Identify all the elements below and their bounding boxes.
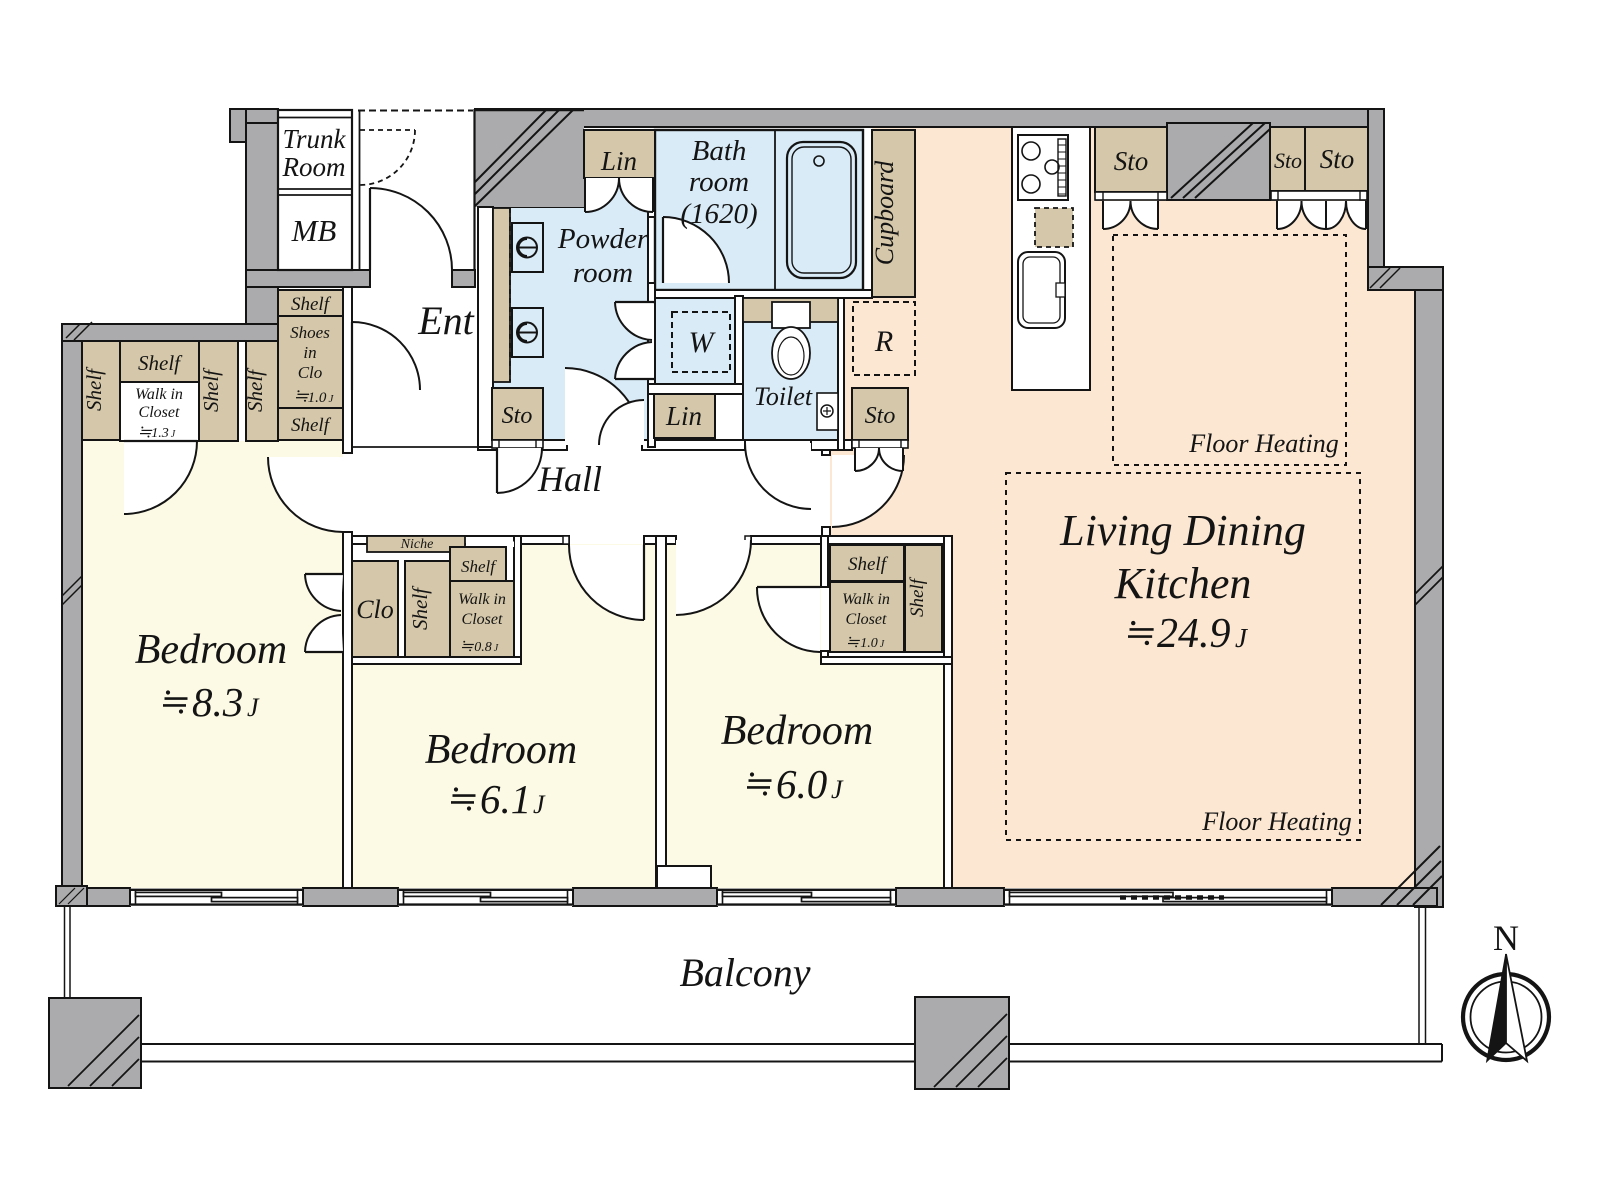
svg-text:Shoes: Shoes	[290, 323, 330, 342]
svg-text:J: J	[831, 775, 844, 804]
svg-text:Bath: Bath	[692, 135, 747, 167]
svg-text:MB: MB	[291, 213, 337, 248]
svg-text:J: J	[533, 790, 546, 819]
svg-text:Lin: Lin	[665, 401, 702, 431]
svg-text:J: J	[171, 429, 176, 440]
svg-text:Shelf: Shelf	[408, 585, 432, 630]
svg-text:6.1: 6.1	[480, 776, 531, 822]
svg-text:Clo: Clo	[356, 595, 394, 624]
svg-text:Sto: Sto	[1114, 146, 1149, 176]
svg-text:Bedroom: Bedroom	[425, 727, 577, 773]
svg-text:Niche: Niche	[400, 537, 434, 552]
svg-text:N: N	[1493, 918, 1519, 958]
svg-text:room: room	[689, 166, 749, 198]
svg-text:Shelf: Shelf	[848, 554, 889, 575]
svg-text:Sto: Sto	[1274, 148, 1302, 173]
svg-text:Walk in: Walk in	[135, 386, 183, 403]
svg-text:Bedroom: Bedroom	[135, 627, 287, 673]
svg-text:6.0: 6.0	[776, 761, 827, 807]
svg-text:J: J	[880, 639, 885, 650]
svg-text:Shelf: Shelf	[291, 294, 332, 315]
svg-text:Shelf: Shelf	[907, 576, 928, 617]
svg-text:Shelf: Shelf	[199, 367, 223, 412]
svg-text:1.0: 1.0	[308, 390, 327, 406]
svg-text:Toilet: Toilet	[754, 382, 813, 411]
svg-text:Balcony: Balcony	[679, 950, 810, 995]
svg-text:in: in	[303, 343, 316, 362]
svg-text:Closet: Closet	[139, 404, 180, 421]
svg-text:Walk in: Walk in	[458, 591, 506, 608]
svg-text:0.8: 0.8	[474, 640, 492, 655]
svg-text:Shelf: Shelf	[138, 351, 183, 375]
svg-text:Closet: Closet	[846, 611, 887, 628]
svg-text:Walk in: Walk in	[842, 591, 890, 608]
svg-text:Powder: Powder	[557, 223, 649, 255]
svg-text:Lin: Lin	[600, 146, 637, 176]
svg-text:J: J	[494, 643, 499, 654]
svg-text:R: R	[874, 325, 893, 358]
svg-text:1.0: 1.0	[860, 636, 878, 651]
svg-text:Room: Room	[282, 152, 346, 182]
svg-text:Sto: Sto	[1320, 144, 1355, 174]
svg-text:Sto: Sto	[865, 403, 896, 429]
svg-text:Ent: Ent	[417, 298, 474, 343]
svg-text:Shelf: Shelf	[291, 415, 332, 436]
svg-text:1.3: 1.3	[151, 426, 169, 441]
svg-text:J: J	[1235, 623, 1249, 653]
svg-text:Living Dining: Living Dining	[1059, 506, 1306, 555]
svg-text:Clo: Clo	[298, 363, 323, 382]
svg-text:Closet: Closet	[462, 611, 503, 628]
svg-text:24.9: 24.9	[1157, 611, 1231, 657]
svg-text:J: J	[247, 693, 260, 722]
svg-text:(1620): (1620)	[680, 198, 757, 230]
svg-text:Shelf: Shelf	[461, 557, 497, 576]
svg-text:Cupboard: Cupboard	[870, 160, 899, 265]
svg-text:Kitchen: Kitchen	[1114, 559, 1252, 608]
svg-text:8.3: 8.3	[192, 679, 243, 725]
svg-text:room: room	[573, 257, 633, 289]
svg-text:Bedroom: Bedroom	[721, 708, 873, 754]
svg-text:Trunk: Trunk	[282, 124, 346, 154]
svg-text:Shelf: Shelf	[243, 367, 267, 412]
svg-text:Floor Heating: Floor Heating	[1201, 807, 1352, 836]
svg-text:Hall: Hall	[537, 459, 602, 499]
svg-text:Shelf: Shelf	[82, 366, 106, 411]
svg-text:Floor Heating: Floor Heating	[1188, 429, 1339, 458]
svg-text:Sto: Sto	[502, 403, 533, 429]
svg-text:W: W	[689, 326, 717, 359]
